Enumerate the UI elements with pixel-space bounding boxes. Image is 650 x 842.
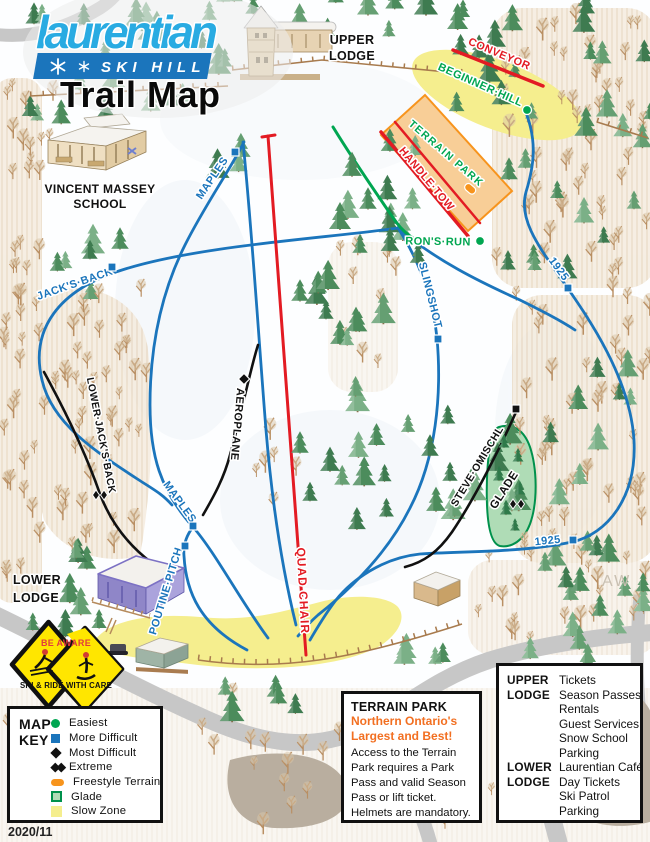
lodge-service-row: UPPERTickets [507, 673, 638, 688]
logo-wordmark: laurentian [36, 6, 218, 58]
lodge-service-row: LODGEDay Tickets [507, 775, 638, 790]
lower-lodge-label-2: LODGE [13, 591, 59, 605]
trail-label-rons-run: RON'S·RUN [405, 235, 471, 248]
upper-lodge-label-2: LODGE [329, 49, 375, 63]
lodge-service-row: LOWERLaurentian Café [507, 760, 638, 775]
sign-line2: SKI & RIDE WITH CARE [20, 681, 112, 690]
school-label-2: SCHOOL [73, 197, 126, 211]
easiest-marker-icon [51, 719, 60, 728]
legend-row-glade: Glade [51, 789, 160, 804]
artist-initials: AW [602, 573, 631, 590]
most-difficult-marker-steve [512, 405, 520, 413]
legend-row-freestyle: Freestyle Terrain [51, 775, 160, 790]
lodge-services-box: UPPERTickets LODGESeason Passes Rentals … [496, 663, 643, 823]
terrain-park-box-title: TERRAIN PARK [351, 700, 472, 714]
legend-items: Easiest More Difficult Most Difficult Ex… [51, 716, 160, 816]
legend-title-line2: KEY [19, 732, 51, 748]
terrain-park-body-text: Access to the Terrain Park requires a Pa… [351, 746, 472, 821]
extreme-marker-icon [51, 762, 66, 773]
sign-line1: BE AWARE [41, 638, 91, 648]
most-difficult-marker-icon [50, 747, 61, 758]
lift-quad-top-tick [262, 135, 275, 137]
terrain-park-info-box: TERRAIN PARK Northern Ontario's Largest … [341, 691, 482, 823]
lodge-service-row: Parking [507, 746, 638, 761]
map-key-legend: MAP KEY Easiest More Difficult Most Diff… [7, 706, 163, 823]
legend-row-extreme: Extreme [51, 760, 160, 775]
legend-row-slow-zone: Slow Zone [51, 804, 160, 819]
lodge-service-row: LODGESeason Passes [507, 688, 638, 703]
easiest-marker-rons-run [476, 237, 485, 246]
lodge-service-row: Guest Services [507, 717, 638, 732]
glade-marker-icon [51, 791, 62, 802]
freestyle-marker-icon [51, 779, 64, 786]
upper-lodge-label-1: UPPER [330, 33, 375, 47]
lodge-service-row: Parking [507, 804, 638, 819]
school-label-1: VINCENT MASSEY [45, 182, 156, 196]
lodge-service-row: Snow School [507, 731, 638, 746]
legend-row-more-difficult: More Difficult [51, 731, 160, 746]
slow-zone-marker-icon [51, 806, 62, 817]
lower-lodge-label-1: LOWER [13, 573, 61, 587]
legend-title-line1: MAP [19, 716, 51, 732]
terrain-park-tagline-2: Largest and Best! [351, 729, 472, 744]
lodge-service-row: Ski Patrol [507, 789, 638, 804]
easiest-marker-beginner [523, 106, 532, 115]
map-version: 2020/11 [8, 825, 53, 839]
legend-title: MAP KEY [19, 716, 51, 816]
legend-row-easiest: Easiest [51, 716, 160, 731]
terrain-park-tagline-1: Northern Ontario's [351, 714, 472, 729]
more-difficult-marker-icon [51, 734, 60, 743]
trail-map-page: CONVEYOR BEGINNER·HILL TERRAIN PARK HAND… [0, 0, 650, 842]
lodge-service-row: Rentals [507, 702, 638, 717]
map-title: Trail Map [60, 74, 221, 115]
legend-row-most-difficult: Most Difficult [51, 745, 160, 760]
